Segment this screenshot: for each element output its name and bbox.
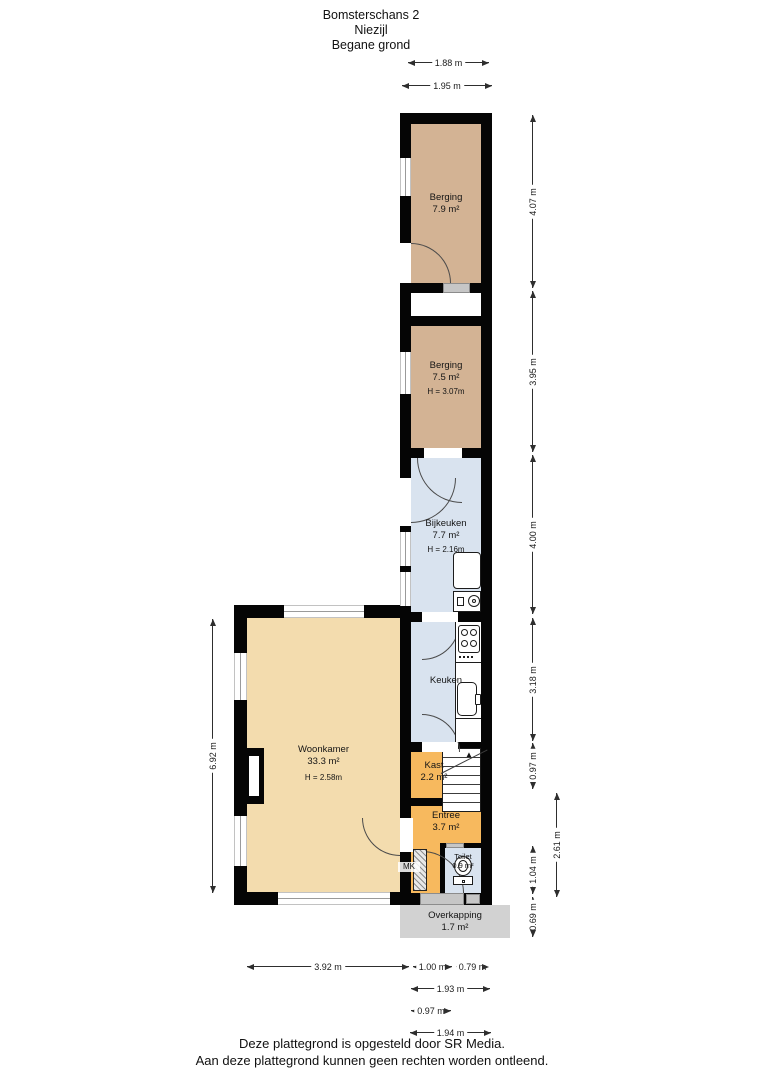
window xyxy=(278,892,390,905)
room-label-kast: Kast2.2 m² xyxy=(406,760,462,785)
room-label-keuken: Keuken xyxy=(411,675,481,687)
appliance-icon xyxy=(453,552,481,589)
dimension-right-5: 0.97 m xyxy=(532,743,533,789)
dimension-left-1: 6.92 m xyxy=(212,619,213,893)
window xyxy=(234,816,247,866)
dimension-right-1: 4.07 m xyxy=(532,115,533,288)
stove-knobs-icon xyxy=(459,656,473,658)
front-door xyxy=(420,893,464,905)
dimension-right-7: 0.69 m xyxy=(532,897,533,937)
title-floor: Begane grond xyxy=(171,38,571,53)
dimension-right-8: 2.61 m xyxy=(556,793,557,897)
faucet-icon xyxy=(475,694,481,705)
dimension-bottom-3: 0.79 m xyxy=(456,966,489,967)
wall-kast xyxy=(400,798,444,806)
dimension-bottom-2: 1.00 m xyxy=(413,966,452,967)
open-passage xyxy=(411,293,481,316)
door-opening xyxy=(400,243,411,283)
window xyxy=(400,572,411,606)
door-opening xyxy=(424,448,462,458)
counter-divider xyxy=(455,662,481,663)
toilet-door xyxy=(446,843,464,848)
footer-line-1: Deze plattegrond is opgesteld door SR Me… xyxy=(82,1036,662,1053)
stove-icon xyxy=(458,625,480,653)
dimension-right-6: 1.04 m xyxy=(532,846,533,894)
stair-direction-arrow-icon: ▲ xyxy=(465,750,473,759)
window xyxy=(234,653,247,700)
title-address: Bomsterschans 2 xyxy=(171,8,571,23)
room-label-woonkamer: Woonkamer33.3 m² H = 2.58m xyxy=(247,744,400,783)
room-label-toilet: Toilet0.9 m² xyxy=(445,852,481,870)
dimension-right-3: 4.00 m xyxy=(532,455,533,614)
window xyxy=(400,352,411,394)
footer-disclaimer: Deze plattegrond is opgesteld door SR Me… xyxy=(82,1036,662,1069)
dimension-right-2: 3.95 m xyxy=(532,291,533,452)
window xyxy=(400,532,411,566)
dimension-right-4: 3.18 m xyxy=(532,618,533,741)
dimension-bottom-5: 0.97 m xyxy=(411,1010,451,1011)
room-label-berging-2: Berging7.5 m² H = 3.07m xyxy=(411,360,481,397)
page-title: Bomsterschans 2 Niezijl Begane grond xyxy=(171,8,571,53)
window xyxy=(284,605,364,618)
room-label-bijkeuken: Bijkeuken7.7 m² H = 2.16m xyxy=(411,518,481,555)
dimension-bottom-6: 1.94 m xyxy=(410,1032,491,1033)
room-label-berging-1: Berging7.9 m² xyxy=(411,192,481,217)
counter-divider xyxy=(455,718,481,719)
dimension-top-1: 1.88 m xyxy=(408,62,489,63)
toilet-tank-icon xyxy=(453,876,473,885)
room-label-meterkast: MK xyxy=(398,862,420,872)
berging-passage-door xyxy=(443,283,470,293)
floorplan-page: Bomsterschans 2 Niezijl Begane grond ▲ xyxy=(0,0,764,1080)
dimension-top-2: 1.95 m xyxy=(402,85,492,86)
room-label-overkapping: Overkapping1.7 m² xyxy=(400,910,510,935)
washing-machine-icon xyxy=(453,591,481,612)
room-label-entree: Entree3.7 m² xyxy=(411,810,481,835)
window xyxy=(400,158,411,196)
door-opening xyxy=(400,478,411,526)
door-opening xyxy=(422,612,458,622)
dimension-bottom-4: 1.93 m xyxy=(411,988,490,989)
footer-line-2: Aan deze plattegrond kunnen geen rechten… xyxy=(82,1053,662,1070)
dimension-bottom-1: 3.92 m xyxy=(247,966,409,967)
title-city: Niezijl xyxy=(171,23,571,38)
toilet-exterior-window xyxy=(466,894,480,904)
